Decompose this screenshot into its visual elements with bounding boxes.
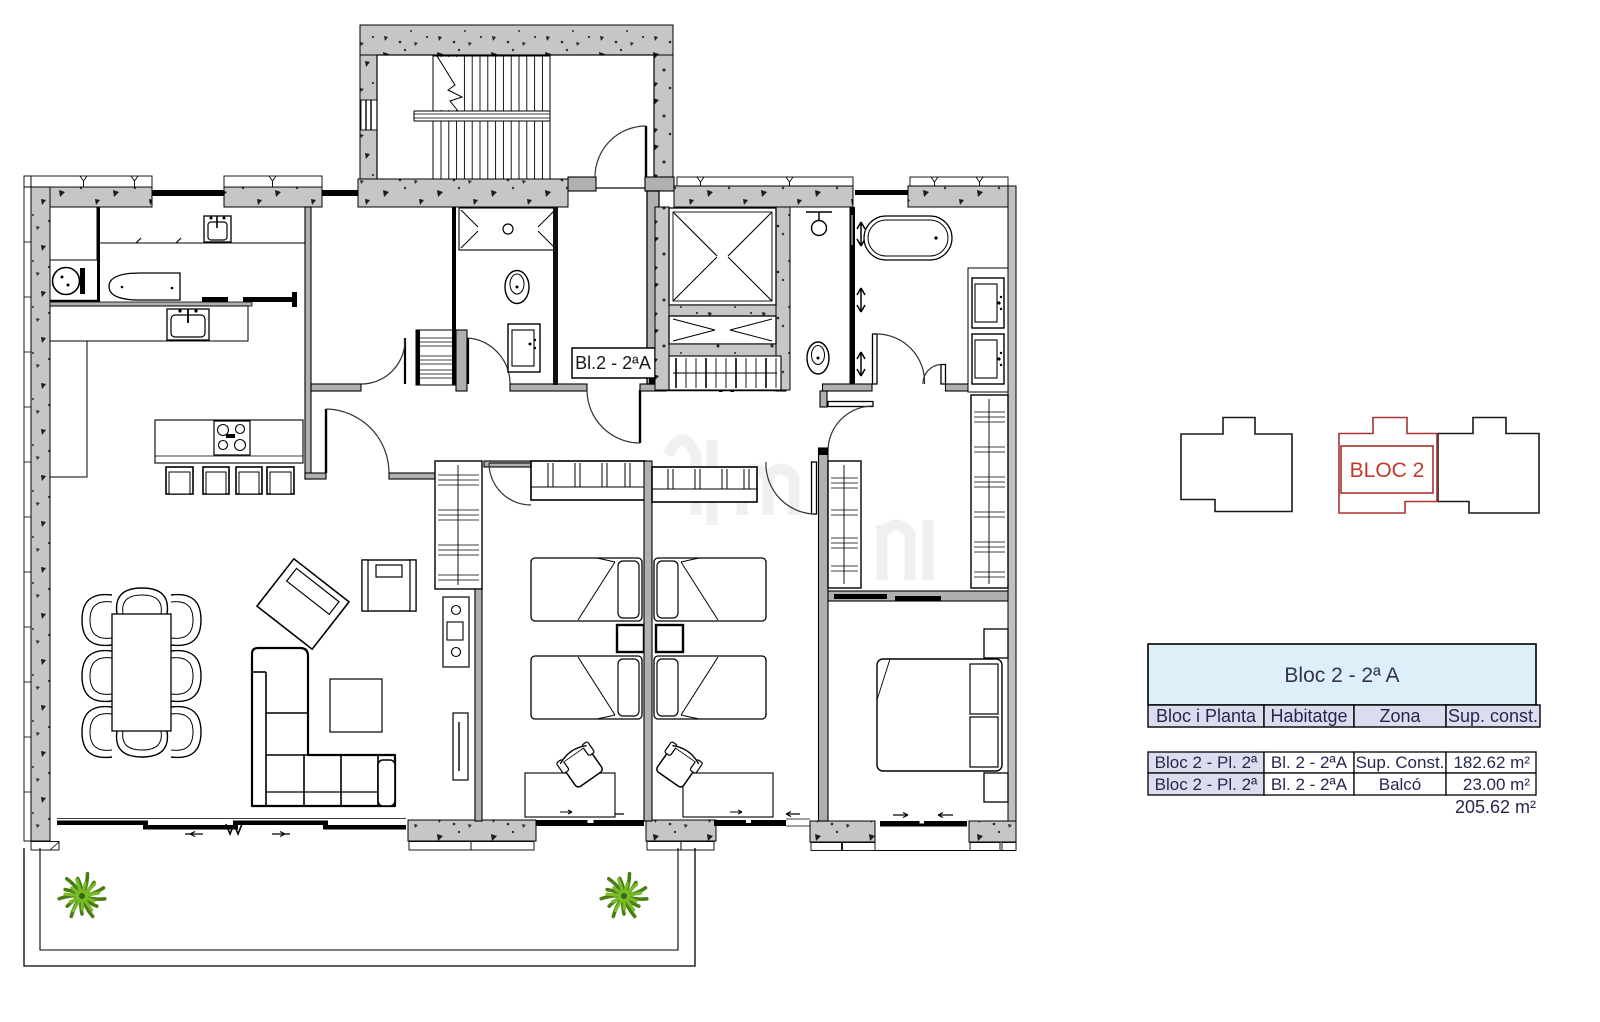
svg-text:Bl. 2 - 2ªA: Bl. 2 - 2ªA bbox=[1271, 753, 1348, 772]
svg-text:Sup. const.: Sup. const. bbox=[1448, 706, 1538, 726]
svg-text:Balcó: Balcó bbox=[1379, 775, 1422, 794]
svg-text:Habitatge: Habitatge bbox=[1270, 706, 1347, 726]
svg-text:Bl.2 - 2ªA: Bl.2 - 2ªA bbox=[575, 353, 651, 373]
svg-text:Bl. 2 - 2ªA: Bl. 2 - 2ªA bbox=[1271, 775, 1348, 794]
svg-text:Bloc i Planta: Bloc i Planta bbox=[1156, 706, 1257, 726]
svg-text:Bloc 2 - Pl. 2ª: Bloc 2 - Pl. 2ª bbox=[1155, 775, 1258, 794]
svg-text:BLOC 2: BLOC 2 bbox=[1350, 459, 1425, 482]
svg-text:Zona: Zona bbox=[1379, 706, 1421, 726]
svg-text:205.62 m²: 205.62 m² bbox=[1455, 797, 1536, 817]
svg-text:Bloc 2 - Pl. 2ª: Bloc 2 - Pl. 2ª bbox=[1155, 753, 1258, 772]
svg-text:23.00 m²: 23.00 m² bbox=[1463, 775, 1530, 794]
svg-text:Bloc 2 - 2ª A: Bloc 2 - 2ª A bbox=[1284, 664, 1399, 687]
svg-text:Sup. Const.: Sup. Const. bbox=[1356, 753, 1445, 772]
svg-text:182.62 m²: 182.62 m² bbox=[1453, 753, 1530, 772]
